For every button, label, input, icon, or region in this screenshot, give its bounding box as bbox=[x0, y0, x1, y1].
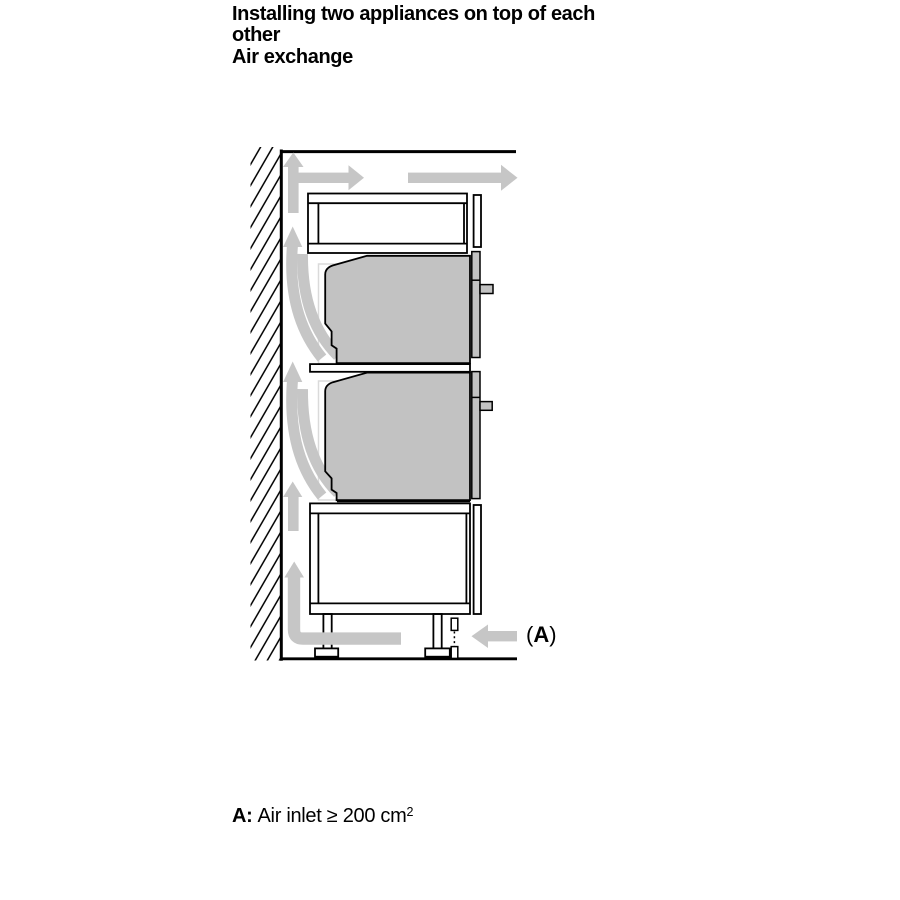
cabinet-leg bbox=[433, 614, 441, 648]
top-cabinet bbox=[308, 194, 481, 254]
wall-hatching bbox=[251, 147, 282, 661]
plinth-vent-upper bbox=[451, 618, 458, 630]
cabinet-foot bbox=[315, 648, 338, 656]
plinth-vent-lower bbox=[451, 647, 458, 659]
manual-page: Installing two appliances on top of each… bbox=[0, 0, 900, 900]
airflow-up-arrow bbox=[283, 482, 302, 532]
lower-appliance bbox=[325, 372, 492, 502]
upper-appliance-handle bbox=[480, 285, 493, 294]
upper-appliance-body bbox=[325, 256, 470, 363]
lower-appliance-door bbox=[472, 372, 480, 499]
label-a-letter: A bbox=[533, 622, 549, 647]
caption-label: A: bbox=[232, 805, 253, 827]
air-inlet-arrow bbox=[472, 625, 518, 649]
caption-air-inlet: A:Air inlet ≥ 200 cm2 bbox=[232, 805, 413, 828]
upper-appliance-door bbox=[472, 252, 480, 358]
upper-appliance bbox=[325, 252, 493, 365]
lower-appliance-body bbox=[325, 373, 470, 501]
base-cabinet-front-trim bbox=[474, 505, 481, 614]
caption-text: Air inlet ≥ 200 cm bbox=[258, 805, 407, 827]
airflow-exhaust-arrow bbox=[408, 165, 518, 191]
top-cabinet-front-trim bbox=[474, 195, 481, 247]
label-a-close: ) bbox=[549, 622, 556, 647]
intermediate-shelf bbox=[310, 364, 470, 372]
cabinet-foot bbox=[425, 648, 450, 656]
installation-diagram bbox=[0, 0, 900, 900]
lower-appliance-handle bbox=[480, 402, 492, 411]
label-a: (A) bbox=[526, 622, 557, 648]
caption-superscript: 2 bbox=[406, 805, 413, 819]
